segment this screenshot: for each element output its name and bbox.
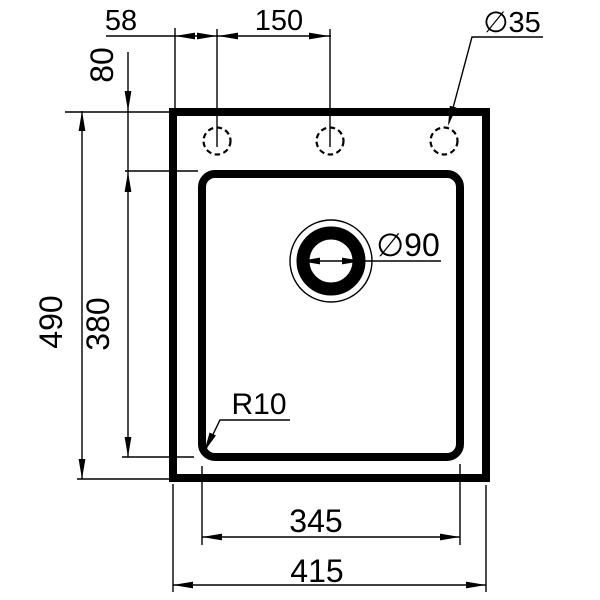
arrowhead bbox=[466, 582, 486, 589]
faucet-hole-right bbox=[431, 128, 458, 155]
label-hole-offset-left: 58 bbox=[105, 5, 137, 37]
arrowhead bbox=[79, 459, 86, 479]
label-hole-offset-top: 80 bbox=[84, 47, 120, 83]
label-corner-radius: R10 bbox=[231, 388, 286, 421]
arrowhead bbox=[79, 111, 86, 131]
drawing-canvas: 58 150 ∅35 80 490 380 ∅90 R10 345 415 bbox=[0, 0, 600, 600]
label-hole-spacing: 150 bbox=[255, 5, 303, 37]
label-overall-width: 415 bbox=[290, 553, 343, 589]
sink-technical-drawing: 58 150 ∅35 80 490 380 ∅90 R10 345 415 bbox=[0, 0, 600, 600]
arrowhead bbox=[218, 33, 238, 40]
arrowhead bbox=[125, 437, 132, 457]
dimension-labels: 58 150 ∅35 80 490 380 ∅90 R10 345 415 bbox=[33, 5, 541, 589]
arrowhead bbox=[197, 33, 217, 40]
label-drain-diameter: ∅90 bbox=[376, 227, 439, 263]
label-bowl-height: 380 bbox=[80, 297, 116, 350]
arrowhead bbox=[175, 33, 195, 40]
label-hole-diameter: ∅35 bbox=[483, 7, 541, 39]
sink-outlines bbox=[173, 112, 486, 478]
leader-corner-radius bbox=[205, 420, 290, 451]
arrowhead bbox=[202, 534, 222, 541]
arrowhead bbox=[173, 582, 193, 589]
arrowhead bbox=[440, 534, 460, 541]
arrowhead bbox=[125, 172, 132, 192]
arrowhead bbox=[125, 91, 132, 111]
label-overall-height: 490 bbox=[33, 295, 69, 348]
arrowhead bbox=[309, 33, 329, 40]
label-bowl-width: 345 bbox=[289, 503, 342, 539]
